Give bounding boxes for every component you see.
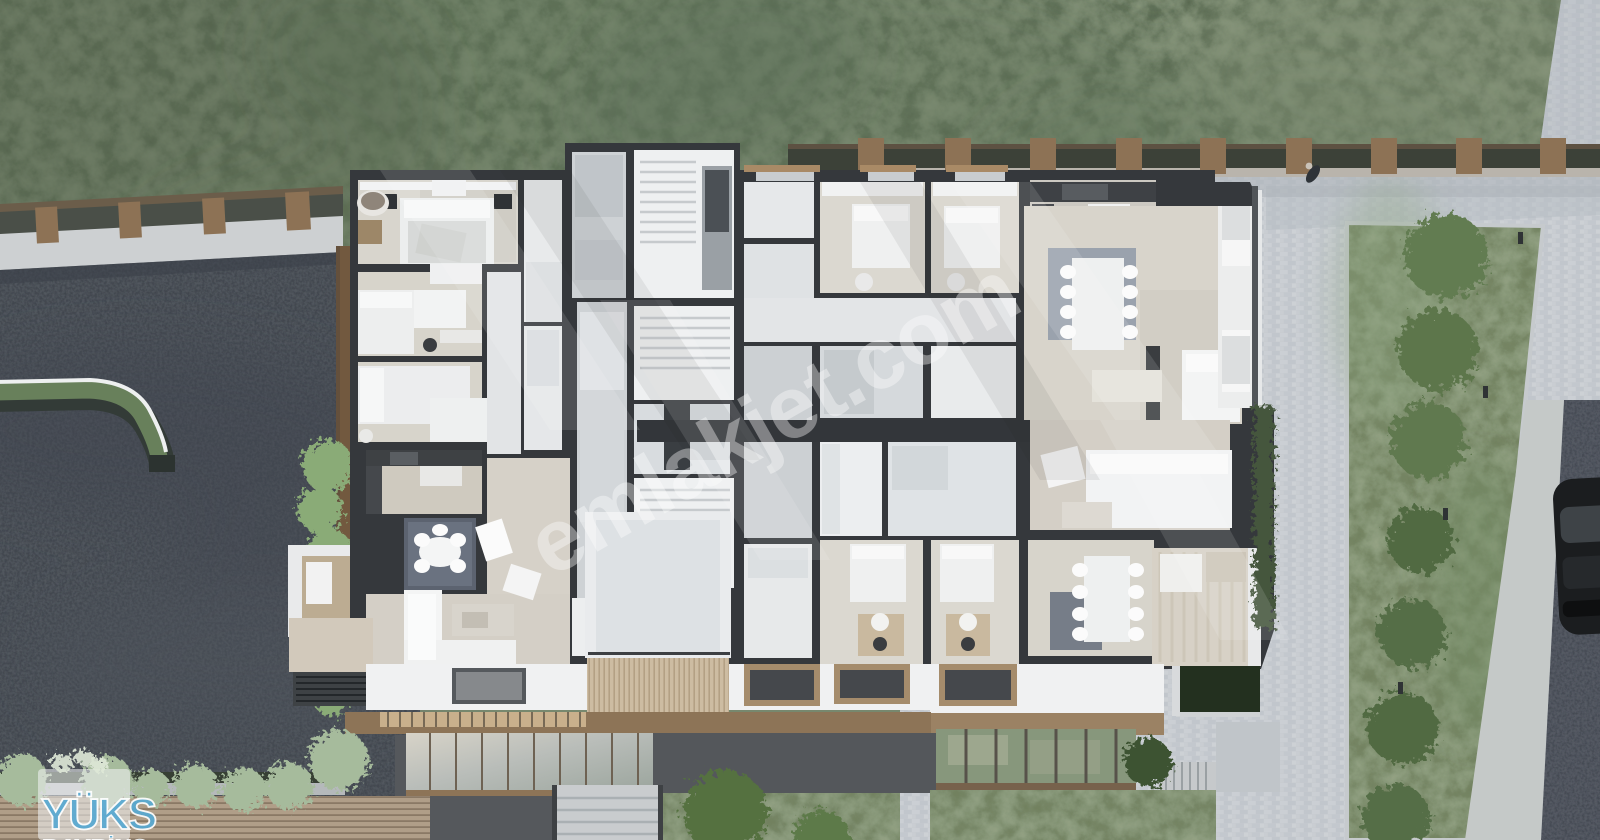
- svg-text:BAYRİNŞ: BAYRİNŞ: [42, 835, 148, 840]
- svg-text:YÜKS: YÜKS: [41, 790, 156, 839]
